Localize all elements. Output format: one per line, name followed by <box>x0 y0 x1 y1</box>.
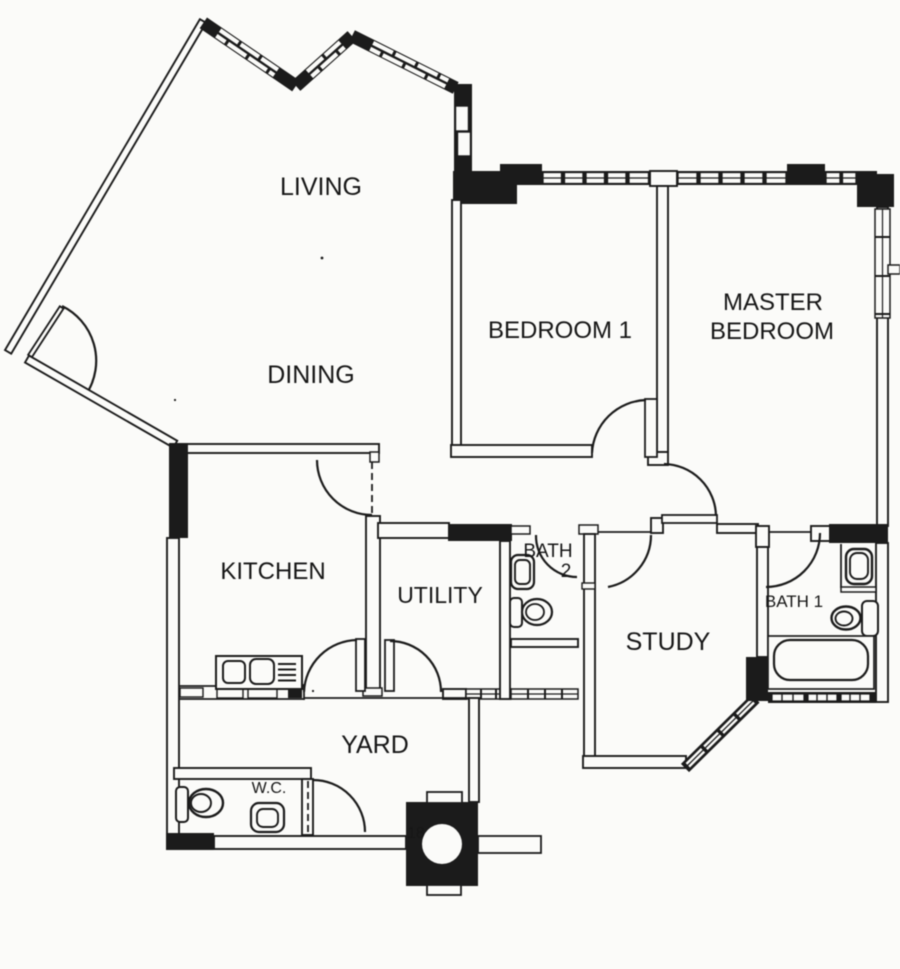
svg-text:STUDY: STUDY <box>626 628 711 656</box>
svg-text:DINING: DINING <box>267 361 355 389</box>
svg-text:BATH: BATH <box>523 541 572 562</box>
svg-text:BEDROOM: BEDROOM <box>710 318 834 345</box>
svg-text:UTILITY: UTILITY <box>397 582 483 608</box>
svg-text:MASTER: MASTER <box>723 289 823 316</box>
svg-text:BATH 1: BATH 1 <box>765 592 823 611</box>
svg-text:2: 2 <box>561 561 572 582</box>
svg-text:BEDROOM 1: BEDROOM 1 <box>488 317 632 344</box>
svg-text:KITCHEN: KITCHEN <box>220 558 325 585</box>
svg-text:LIVING: LIVING <box>280 173 362 201</box>
svg-text:YARD: YARD <box>341 731 409 759</box>
svg-text:18: 18 <box>407 825 425 842</box>
svg-text:W.C.: W.C. <box>252 780 287 797</box>
